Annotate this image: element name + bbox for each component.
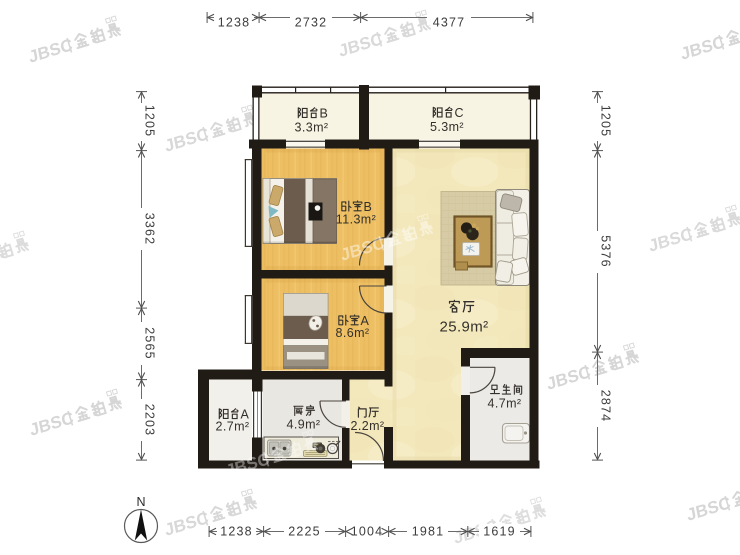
svg-text:11.3m²: 11.3m² (336, 213, 376, 227)
svg-text:1205: 1205 (599, 105, 613, 138)
svg-text:2225: 2225 (288, 525, 321, 539)
svg-text:4.9m²: 4.9m² (287, 418, 321, 432)
svg-text:2.2m²: 2.2m² (351, 419, 385, 433)
svg-text:2874: 2874 (599, 390, 613, 423)
svg-text:1205: 1205 (143, 105, 157, 138)
svg-text:1238: 1238 (220, 525, 253, 539)
svg-text:1619: 1619 (483, 525, 516, 539)
svg-text:2565: 2565 (143, 327, 157, 360)
svg-text:2203: 2203 (143, 404, 157, 437)
svg-text:1004: 1004 (351, 525, 384, 539)
svg-text:3.3m²: 3.3m² (295, 121, 329, 135)
svg-text:2.7m²: 2.7m² (216, 420, 250, 434)
svg-text:2732: 2732 (295, 16, 328, 30)
svg-text:C: C (455, 106, 464, 120)
svg-text:5.3m²: 5.3m² (430, 120, 464, 134)
svg-text:N: N (136, 495, 145, 509)
svg-text:5376: 5376 (599, 235, 613, 268)
svg-text:1238: 1238 (218, 16, 251, 30)
svg-text:8.6m²: 8.6m² (336, 326, 370, 340)
svg-text:3362: 3362 (143, 213, 157, 246)
svg-text:1981: 1981 (412, 525, 445, 539)
svg-text:25.9m²: 25.9m² (439, 319, 488, 336)
svg-text:4.7m²: 4.7m² (488, 397, 522, 411)
svg-text:4377: 4377 (433, 16, 466, 30)
svg-text:B: B (320, 107, 329, 121)
